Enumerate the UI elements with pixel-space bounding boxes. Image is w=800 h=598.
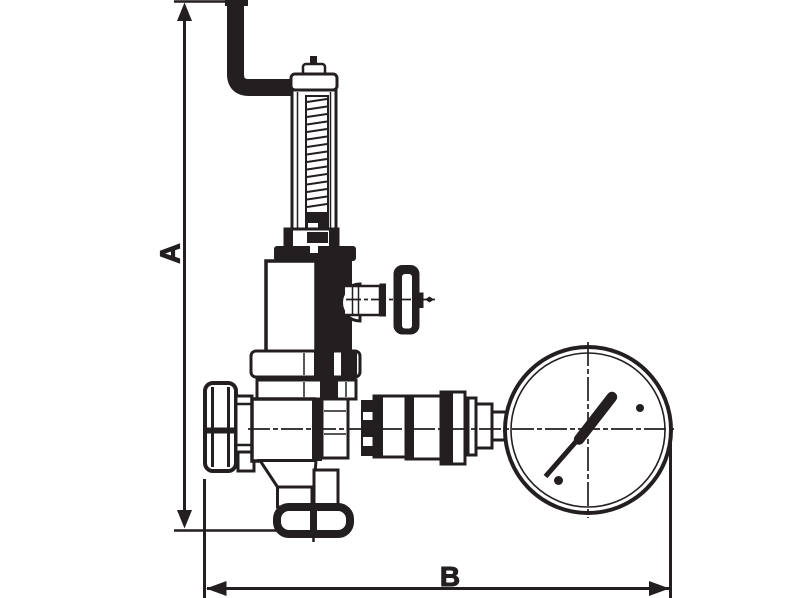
svg-text:B: B (440, 561, 460, 592)
svg-text:A: A (155, 243, 186, 263)
